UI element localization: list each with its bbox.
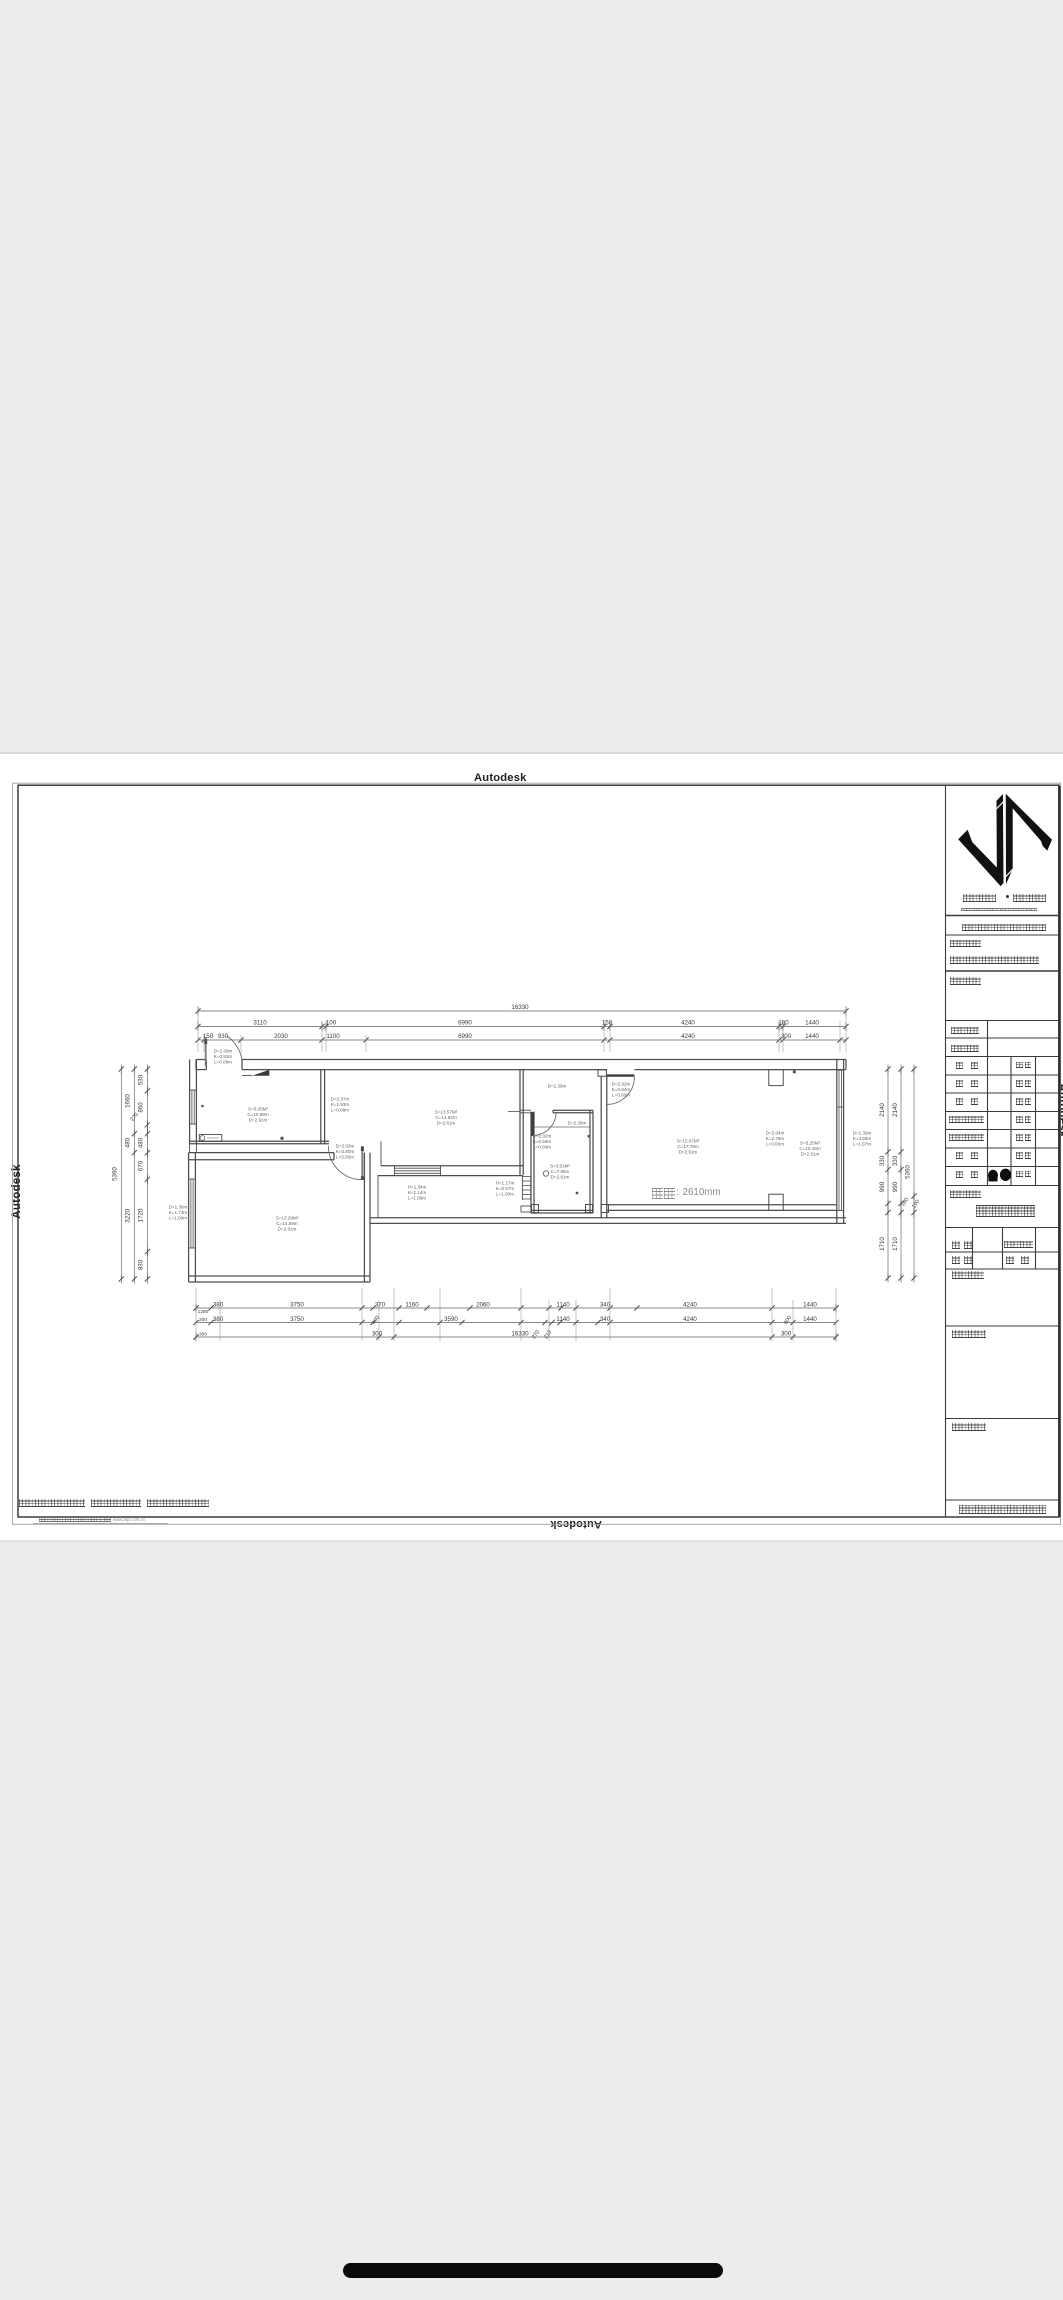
svg-text:530: 530: [137, 1074, 144, 1085]
svg-text:D=2.03m: D=2.03m: [336, 1144, 355, 1149]
svg-text:210: 210: [543, 1329, 553, 1340]
svg-text:S=5.05M²: S=5.05M²: [248, 1107, 269, 1112]
svg-text:D=2.02m: D=2.02m: [533, 1134, 552, 1139]
svg-text:380: 380: [213, 1316, 224, 1323]
svg-text:D=1.39m: D=1.39m: [853, 1131, 872, 1136]
svg-text:K=0.80m: K=0.80m: [336, 1149, 355, 1154]
svg-text:300: 300: [372, 1331, 383, 1338]
svg-text:D=2.39m: D=2.39m: [548, 1084, 567, 1089]
svg-text:L=0.00m: L=0.00m: [766, 1141, 784, 1146]
svg-text:2030: 2030: [274, 1033, 288, 1040]
svg-text:300: 300: [199, 1332, 207, 1338]
svg-text:D=2.61m: D=2.61m: [551, 1174, 570, 1179]
svg-text:4240: 4240: [681, 1020, 695, 1027]
svg-text:1140: 1140: [556, 1316, 570, 1323]
svg-text:C=17.79m: C=17.79m: [677, 1144, 698, 1149]
svg-text:S=15.67M²: S=15.67M²: [677, 1139, 700, 1144]
svg-text:150: 150: [602, 1020, 613, 1027]
svg-text:1710: 1710: [879, 1237, 886, 1251]
svg-text:D=2.09m: D=2.09m: [214, 1049, 233, 1054]
svg-text:3750: 3750: [290, 1302, 304, 1309]
svg-text:1280: 1280: [198, 1309, 209, 1315]
svg-text:340: 340: [600, 1302, 611, 1309]
svg-text:L=0.08m: L=0.08m: [214, 1059, 232, 1064]
svg-text:190: 190: [900, 1197, 910, 1208]
svg-text:D=2.61m: D=2.61m: [278, 1226, 297, 1231]
svg-text:330: 330: [879, 1155, 886, 1166]
svg-text:1100: 1100: [326, 1033, 340, 1040]
svg-text:L=0.00m: L=0.00m: [533, 1144, 551, 1149]
svg-text:K=1.14m: K=1.14m: [408, 1190, 427, 1195]
svg-text:270: 270: [531, 1329, 541, 1340]
svg-text:D=2.04m: D=2.04m: [766, 1131, 785, 1136]
svg-text:D=2.02m: D=2.02m: [612, 1082, 631, 1087]
svg-text:K=0.93m: K=0.93m: [214, 1054, 233, 1059]
svg-text:370: 370: [375, 1302, 386, 1309]
svg-text:C=7.95m: C=7.95m: [551, 1169, 570, 1174]
svg-text:4240: 4240: [683, 1302, 697, 1309]
svg-text:H=1.17m: H=1.17m: [496, 1181, 515, 1186]
svg-text:K=1.93m: K=1.93m: [331, 1102, 350, 1107]
svg-text:930: 930: [218, 1033, 229, 1040]
svg-text:830: 830: [137, 1259, 144, 1270]
svg-text:K=2.79m: K=2.79m: [766, 1136, 785, 1141]
svg-text:C=14.59m: C=14.59m: [276, 1221, 297, 1226]
svg-text:K=0.84m: K=0.84m: [612, 1087, 631, 1092]
svg-text:D=2.37m: D=2.37m: [331, 1097, 350, 1102]
svg-text:D=2.61m: D=2.61m: [801, 1151, 820, 1156]
svg-text:5360: 5360: [111, 1167, 118, 1181]
svg-text:L=1.08m: L=1.08m: [408, 1195, 426, 1200]
svg-text:1440: 1440: [803, 1302, 817, 1309]
svg-text:340: 340: [600, 1316, 611, 1323]
svg-text:4240: 4240: [681, 1033, 695, 1040]
svg-text:H=1.34m: H=1.34m: [408, 1185, 427, 1190]
svg-text:330: 330: [892, 1155, 899, 1166]
svg-text:S=5.25M²: S=5.25M²: [800, 1141, 821, 1146]
svg-text:200: 200: [199, 1317, 207, 1323]
svg-text:150: 150: [203, 1033, 214, 1040]
svg-text:6990: 6990: [458, 1020, 472, 1027]
svg-text:C=14.92m: C=14.92m: [435, 1115, 456, 1120]
svg-text:1440: 1440: [805, 1020, 819, 1027]
svg-text:1720: 1720: [137, 1208, 144, 1222]
svg-text:K=0.57m: K=0.57m: [496, 1186, 515, 1191]
svg-text:380: 380: [213, 1302, 224, 1309]
svg-text:100: 100: [778, 1020, 789, 1027]
svg-text:990: 990: [879, 1181, 886, 1192]
svg-text:990: 990: [892, 1181, 899, 1192]
svg-text:6990: 6990: [458, 1033, 472, 1040]
svg-text:C=10.89m: C=10.89m: [247, 1112, 268, 1117]
svg-text:L=0.08m: L=0.08m: [331, 1107, 349, 1112]
svg-text:L=1.00m: L=1.00m: [169, 1215, 187, 1220]
svg-text:1440: 1440: [803, 1316, 817, 1323]
svg-text:1660: 1660: [124, 1094, 131, 1108]
svg-text:S=3.63M²: S=3.63M²: [550, 1164, 571, 1169]
svg-text:L=0.00m: L=0.00m: [336, 1154, 354, 1159]
svg-text:860: 860: [137, 1102, 144, 1113]
svg-text:16330: 16330: [511, 1004, 529, 1011]
svg-text:D=2.61m: D=2.61m: [437, 1120, 456, 1125]
svg-text:3110: 3110: [253, 1020, 267, 1027]
svg-text:S=13.29M²: S=13.29M²: [276, 1216, 299, 1221]
svg-text:1440: 1440: [805, 1033, 819, 1040]
svg-text:2140: 2140: [879, 1103, 886, 1117]
svg-text:L=1.07m: L=1.07m: [853, 1141, 871, 1146]
svg-text:K=3.65m: K=3.65m: [853, 1136, 872, 1141]
svg-text:K=1.73m: K=1.73m: [169, 1210, 188, 1215]
svg-text:2140: 2140: [892, 1103, 899, 1117]
svg-text:D=2.61m: D=2.61m: [679, 1149, 698, 1154]
svg-text:300: 300: [781, 1331, 792, 1338]
svg-text:480: 480: [137, 1137, 144, 1148]
svg-text:1140: 1140: [556, 1302, 570, 1309]
svg-text:190: 190: [911, 1199, 921, 1210]
svg-text:2060: 2060: [476, 1302, 490, 1309]
svg-text:5360: 5360: [905, 1165, 912, 1179]
svg-text:D=1.36m: D=1.36m: [169, 1205, 188, 1210]
svg-text:L=1.00m: L=1.00m: [496, 1191, 514, 1196]
svg-text:400: 400: [371, 1315, 381, 1326]
svg-text:16330: 16330: [511, 1331, 529, 1338]
svg-text:480: 480: [124, 1137, 131, 1148]
svg-text:670: 670: [137, 1160, 144, 1171]
svg-text:4240: 4240: [683, 1316, 697, 1323]
svg-text:K=0.59m: K=0.59m: [533, 1139, 552, 1144]
svg-text:3220: 3220: [124, 1208, 131, 1222]
svg-text:D=2.39m: D=2.39m: [568, 1121, 587, 1126]
svg-text:D=2.91m: D=2.91m: [249, 1117, 268, 1122]
svg-text:3590: 3590: [444, 1316, 458, 1323]
svg-text:300: 300: [781, 1033, 792, 1040]
svg-text:L=0.00m: L=0.00m: [612, 1092, 630, 1097]
svg-text:1710: 1710: [892, 1237, 899, 1251]
svg-text:1160: 1160: [405, 1302, 419, 1309]
svg-text:3750: 3750: [290, 1316, 304, 1323]
svg-text:C=10.18m: C=10.18m: [799, 1146, 820, 1151]
svg-text:S=13.57M²: S=13.57M²: [435, 1110, 458, 1115]
svg-text:100: 100: [326, 1020, 337, 1027]
